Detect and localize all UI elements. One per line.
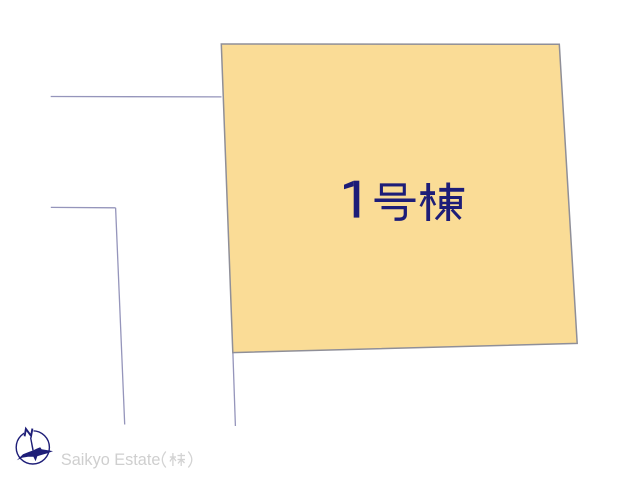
svg-text:Saikyo Estate: Saikyo Estate [61,451,161,469]
